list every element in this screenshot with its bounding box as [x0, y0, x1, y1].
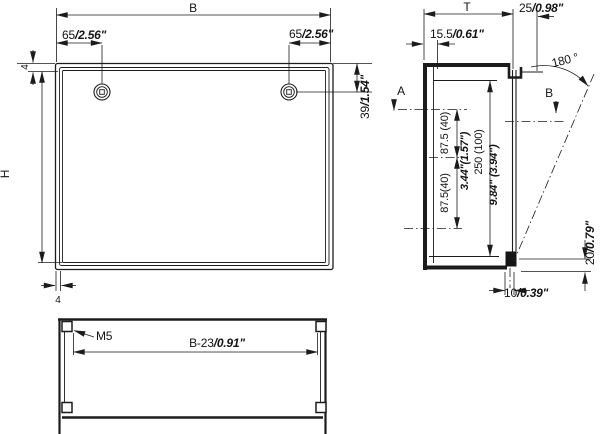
dim-width-label: B	[189, 1, 197, 15]
dim-hinge-offset: 25/0.98"	[519, 1, 564, 15]
bottom-view-dimensions: M5 B-23/0.91"	[74, 329, 318, 355]
inch-value: /2.56"	[74, 28, 107, 42]
dim-height-label: H	[0, 170, 12, 178]
dim-screw-offset-left: 65/2.56"	[62, 28, 107, 42]
section-b-label: B	[545, 86, 553, 100]
pivot-axis-line	[514, 74, 594, 261]
mm-value: 65	[289, 27, 302, 41]
section-a-label: A	[397, 84, 405, 98]
inch-value: /0.61"	[452, 27, 485, 41]
inch-value: /1.54"	[358, 74, 372, 107]
dim-pin-width: 10/0.39"	[504, 286, 549, 300]
bottom-view: M5 B-23/0.91"	[58, 319, 327, 434]
dim-screw-drop: 39/1.54"	[358, 74, 372, 119]
mm-value: B-23	[189, 336, 214, 350]
mm-value: 25	[519, 1, 532, 15]
side-view: T 25/0.98" 15.5/0.61" 180 ° A B 87	[394, 0, 597, 300]
front-view: B 65/2.56" 65/2.56" 4 H 39/1.54"	[0, 1, 372, 306]
hinge-hook	[509, 63, 543, 78]
thread-callout: M5	[96, 329, 113, 343]
mm-value: 39	[358, 106, 372, 119]
dim-opening-angle: 180 °	[550, 50, 580, 70]
technical-drawing-page: B 65/2.56" 65/2.56" 4 H 39/1.54"	[0, 0, 601, 434]
dim-screw-offset-right: 65/2.56"	[289, 27, 334, 41]
dim-depth-label: T	[463, 0, 471, 14]
dim-hole-spacing: B-23/0.91"	[189, 336, 245, 350]
dim-flange-side: 4	[55, 295, 61, 306]
dim-hole-pitch-upper: 87.5 (40)	[439, 112, 451, 154]
dim-front-depth: 15.5/0.61"	[430, 27, 484, 41]
screw-right	[281, 84, 297, 100]
dim-flange-top: 4	[20, 64, 31, 70]
inch-value: /0.98"	[531, 1, 564, 15]
inch-value: /2.56"	[301, 27, 334, 41]
mm-value: 65	[62, 28, 75, 42]
mm-value: 20	[583, 252, 597, 265]
enclosure-drawing: B 65/2.56" 65/2.56" 4 H 39/1.54"	[0, 0, 601, 434]
inch-value: /0.79"	[583, 220, 597, 253]
dim-pin-to-bottom: 20/0.79"	[583, 220, 597, 265]
screw-left	[94, 84, 110, 100]
dim-hole-pitch-inch: 3.44"(1.57")	[459, 131, 471, 190]
inch-value: /0.39"	[516, 286, 549, 300]
dim-cutout-height-inch: 9.84" (3.94")	[488, 144, 500, 206]
dim-cutout-height: 250 (100)	[473, 129, 485, 174]
inch-value: /0.91"	[213, 336, 246, 350]
mm-value: 10	[504, 286, 517, 300]
mm-value: 15.5	[430, 27, 453, 41]
dim-hole-pitch-lower: 87.5(40)	[439, 173, 451, 212]
